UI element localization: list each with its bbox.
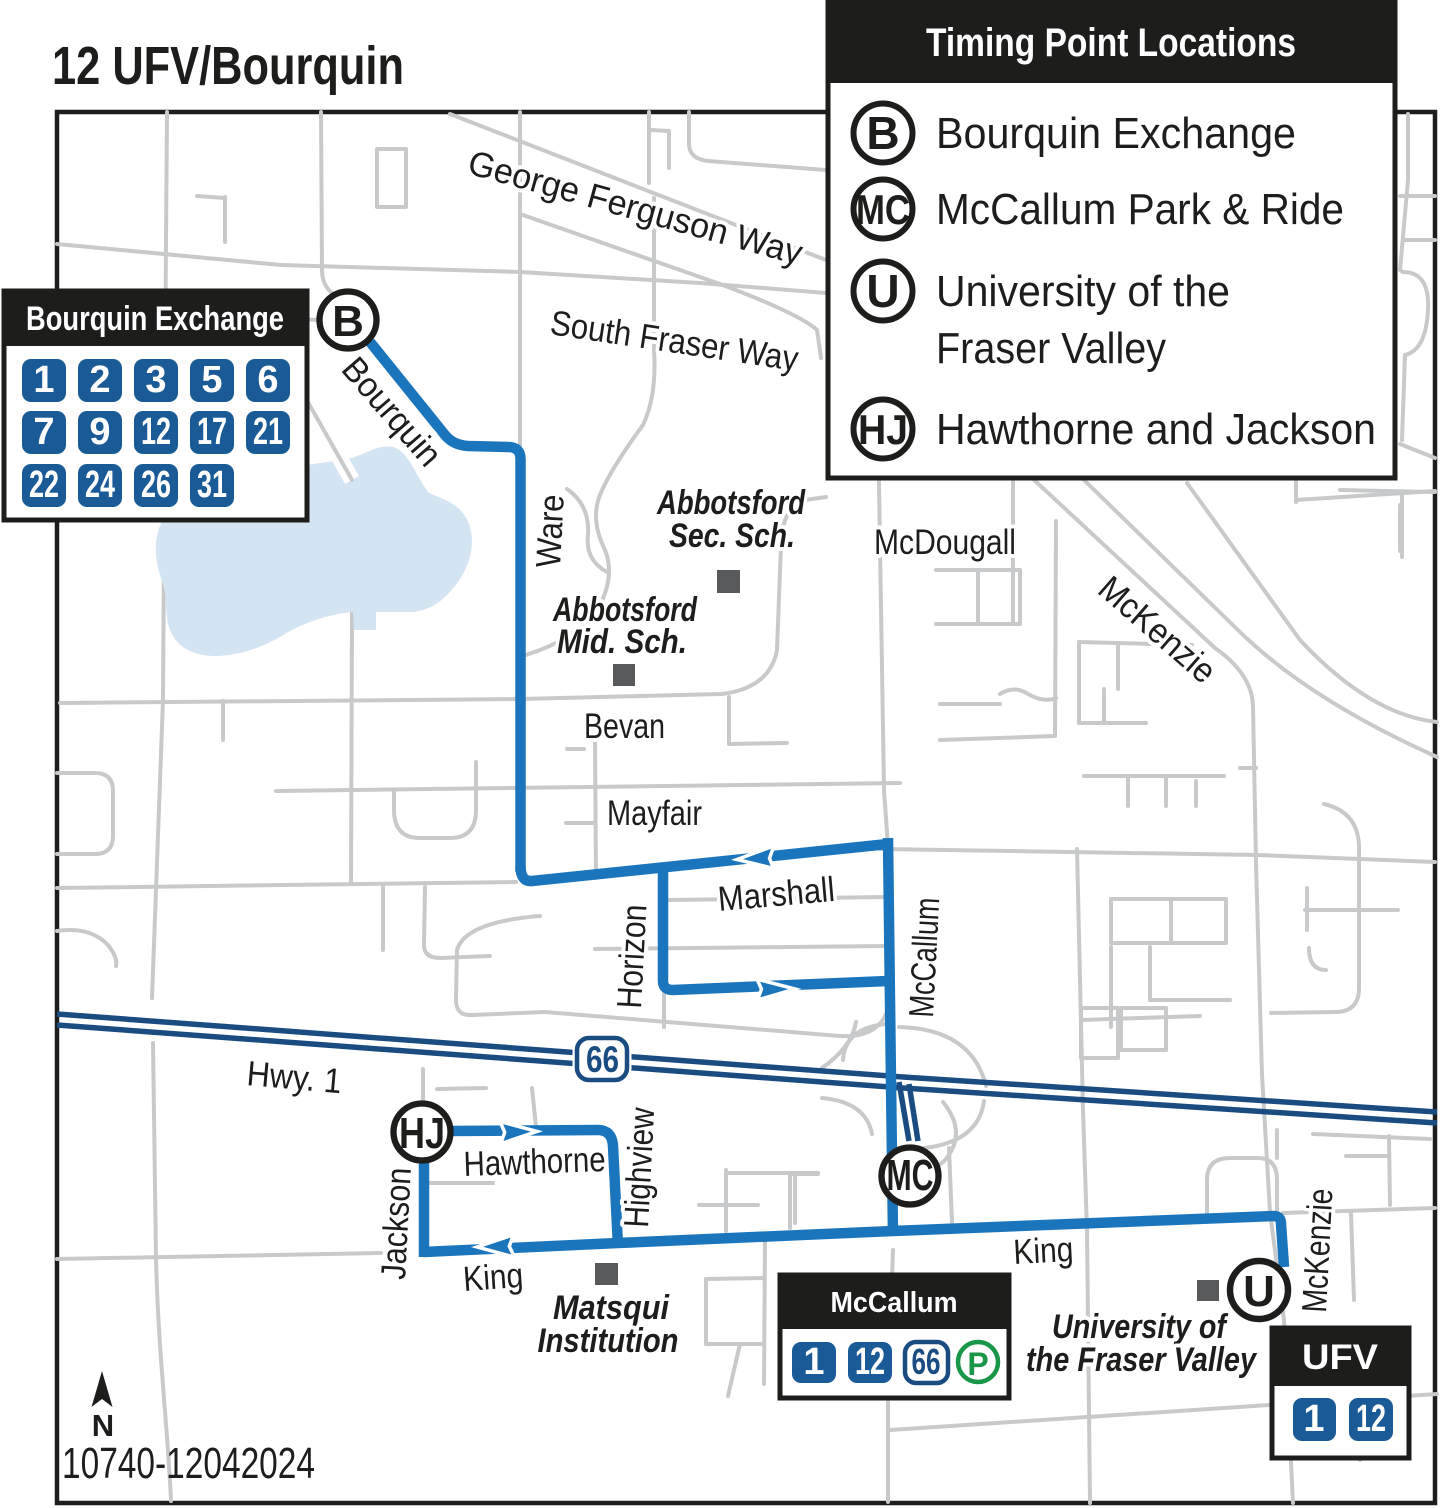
svg-text:King: King bbox=[462, 1256, 525, 1299]
svg-text:McDougall: McDougall bbox=[874, 523, 1016, 562]
svg-text:6: 6 bbox=[257, 359, 278, 401]
svg-text:3: 3 bbox=[145, 359, 166, 401]
svg-text:King: King bbox=[1012, 1230, 1074, 1272]
svg-text:Hawthorne and Jackson: Hawthorne and Jackson bbox=[936, 405, 1376, 454]
svg-text:HJ: HJ bbox=[858, 406, 908, 453]
svg-text:Fraser Valley: Fraser Valley bbox=[936, 324, 1166, 373]
svg-text:66: 66 bbox=[586, 1039, 619, 1080]
svg-text:21: 21 bbox=[253, 411, 283, 453]
svg-text:22: 22 bbox=[29, 464, 59, 506]
svg-text:Ware: Ware bbox=[529, 493, 572, 568]
svg-text:Sec. Sch.: Sec. Sch. bbox=[669, 517, 795, 555]
svg-text:Bevan: Bevan bbox=[584, 707, 665, 746]
svg-text:7: 7 bbox=[33, 411, 54, 453]
svg-text:U: U bbox=[866, 265, 899, 317]
svg-text:Institution: Institution bbox=[538, 1322, 679, 1360]
svg-text:1: 1 bbox=[803, 1341, 824, 1383]
svg-text:12: 12 bbox=[1356, 1398, 1386, 1440]
svg-text:N: N bbox=[92, 1408, 114, 1443]
svg-text:U: U bbox=[1243, 1267, 1275, 1316]
svg-text:McKenzie: McKenzie bbox=[1295, 1188, 1340, 1314]
svg-text:Timing Point Locations: Timing Point Locations bbox=[926, 21, 1296, 65]
svg-text:Hawthorne: Hawthorne bbox=[463, 1140, 606, 1184]
svg-text:17: 17 bbox=[197, 411, 227, 453]
svg-text:McCallum Park & Ride: McCallum Park & Ride bbox=[936, 185, 1344, 234]
svg-text:12: 12 bbox=[855, 1341, 885, 1383]
svg-text:12: 12 bbox=[141, 411, 171, 453]
svg-text:McCallum: McCallum bbox=[831, 1287, 958, 1319]
svg-text:B: B bbox=[866, 107, 899, 159]
svg-text:University of the: University of the bbox=[936, 267, 1230, 316]
svg-text:1: 1 bbox=[1303, 1398, 1324, 1440]
svg-text:UFV: UFV bbox=[1302, 1338, 1379, 1377]
svg-text:66: 66 bbox=[912, 1341, 941, 1382]
svg-text:P: P bbox=[967, 1346, 988, 1382]
svg-text:B: B bbox=[332, 297, 364, 346]
svg-text:Jackson: Jackson bbox=[374, 1167, 419, 1281]
svg-text:Mid. Sch.: Mid. Sch. bbox=[557, 623, 687, 661]
svg-text:10740-12042024: 10740-12042024 bbox=[62, 1439, 315, 1488]
svg-text:Hwy. 1: Hwy. 1 bbox=[245, 1054, 343, 1101]
svg-text:Bourquin Exchange: Bourquin Exchange bbox=[26, 300, 284, 338]
svg-text:Mayfair: Mayfair bbox=[607, 794, 702, 833]
svg-text:9: 9 bbox=[89, 411, 110, 453]
svg-text:the Fraser Valley: the Fraser Valley bbox=[1026, 1341, 1258, 1379]
svg-text:MC: MC bbox=[887, 1151, 934, 1200]
svg-text:26: 26 bbox=[141, 464, 171, 506]
svg-text:31: 31 bbox=[197, 464, 227, 506]
svg-text:McCallum: McCallum bbox=[902, 897, 947, 1019]
svg-text:Highview: Highview bbox=[617, 1106, 662, 1228]
svg-text:5: 5 bbox=[201, 359, 222, 401]
svg-text:24: 24 bbox=[85, 464, 115, 506]
svg-text:12 UFV/Bourquin: 12 UFV/Bourquin bbox=[52, 36, 404, 96]
svg-text:Bourquin Exchange: Bourquin Exchange bbox=[936, 109, 1296, 158]
svg-text:HJ: HJ bbox=[399, 1109, 445, 1158]
svg-text:MC: MC bbox=[856, 186, 910, 233]
svg-text:Horizon: Horizon bbox=[610, 904, 654, 1010]
svg-text:1: 1 bbox=[33, 359, 54, 401]
svg-text:2: 2 bbox=[89, 359, 110, 401]
